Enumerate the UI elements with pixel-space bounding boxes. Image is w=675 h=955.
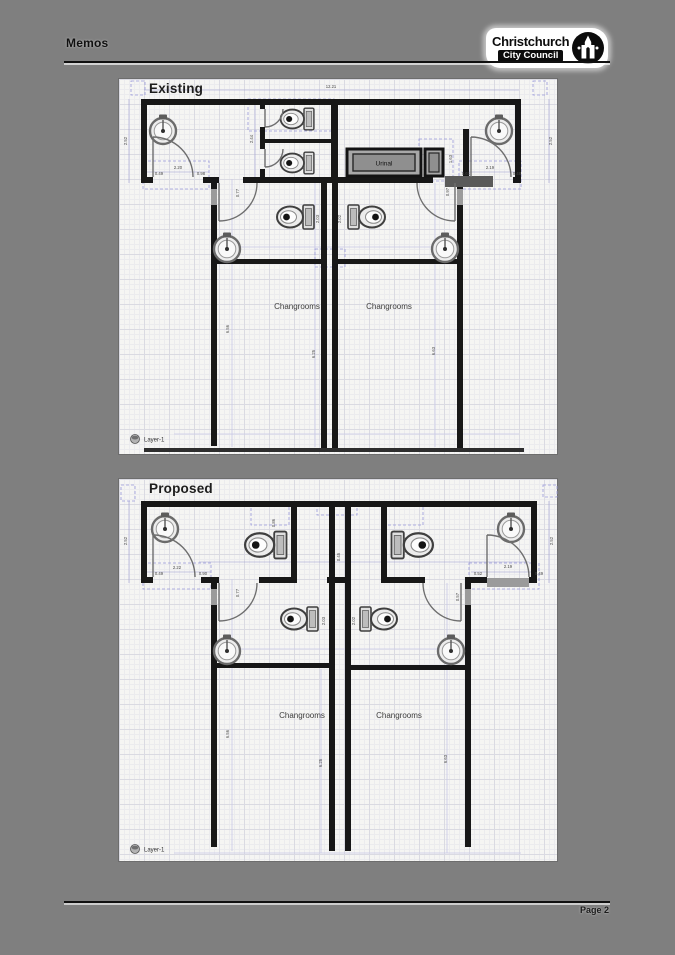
existing-title: Existing xyxy=(149,81,203,96)
memo-title: Memos xyxy=(66,36,108,50)
toilet-icon xyxy=(360,607,397,631)
dim-label: 1.63 xyxy=(448,154,453,163)
dim-label: 0.77 xyxy=(235,588,240,597)
existing-walls xyxy=(141,99,524,452)
dim-label: 0.48 xyxy=(513,171,522,176)
logo-line2: City Council xyxy=(498,50,563,62)
toilet-icon xyxy=(277,205,314,229)
bench-right xyxy=(445,176,493,187)
changrooms-label: Changrooms xyxy=(366,302,412,311)
proposed-fixtures xyxy=(152,513,529,665)
dim-label: 2.19 xyxy=(504,564,513,569)
dim-label: 6.63 xyxy=(443,754,448,763)
changrooms-label: Changrooms xyxy=(376,711,422,720)
dim-label: 2.20 xyxy=(174,165,183,170)
changrooms-label: Changrooms xyxy=(279,711,325,720)
bench-right xyxy=(487,578,529,587)
dim-label: 2.19 xyxy=(486,165,495,170)
dim-label: 0.52 xyxy=(474,571,483,576)
dim-label: 6.25 xyxy=(311,349,316,358)
existing-plan-panel: Existing xyxy=(118,78,558,455)
dim-label: 2.02 xyxy=(351,616,356,625)
cathedral-icon xyxy=(571,31,605,65)
proposed-guides xyxy=(121,485,557,853)
toilet-icon xyxy=(281,108,314,130)
layer-label: Layer-1 xyxy=(144,848,165,854)
dim-label: 12.21 xyxy=(326,84,337,89)
dim-label: 0.77 xyxy=(235,188,240,197)
sink-icon xyxy=(150,115,176,145)
dim-label: 6.25 xyxy=(318,758,323,767)
dim-label: 0.45 xyxy=(336,552,341,561)
dim-label: 2.52 xyxy=(123,536,128,545)
toilet-icon xyxy=(391,532,432,559)
changrooms-label: Changrooms xyxy=(274,302,320,311)
toilet-icon xyxy=(245,532,286,559)
dim-label: 2.03 xyxy=(321,616,326,625)
dim-label: 0.98 xyxy=(197,171,206,176)
dim-label: 0.57 xyxy=(455,592,460,601)
urinal-label: Urinal xyxy=(376,161,394,168)
door-arc xyxy=(265,109,283,127)
dim-label: 2.52 xyxy=(548,136,553,145)
existing-plan-drawing: Existing xyxy=(119,79,559,456)
proposed-plan-drawing: Proposed xyxy=(119,479,559,863)
toilet-icon xyxy=(281,607,318,631)
sink-icon xyxy=(214,233,240,263)
footer-rule xyxy=(64,901,610,903)
logo-line1: Christchurch xyxy=(492,35,569,49)
existing-layer-indicator: Layer-1 xyxy=(131,435,166,444)
layer-label: Layer-1 xyxy=(144,438,165,444)
logo-text: Christchurch City Council xyxy=(492,35,569,62)
dim-label: 0.86 xyxy=(271,518,276,527)
urinal: Urinal xyxy=(347,149,443,176)
dim-label: 0.90 xyxy=(199,571,208,576)
dim-label: 0.49 xyxy=(155,171,164,176)
page-number: Page 2 xyxy=(580,905,609,915)
dim-label: 2.52 xyxy=(549,536,554,545)
dim-label: 6.63 xyxy=(431,346,436,355)
dim-label: 0.49 xyxy=(535,571,544,576)
proposed-layer-indicator: Layer-1 xyxy=(131,845,166,854)
dim-label: 2.52 xyxy=(123,136,128,145)
existing-room-labels: Changrooms Changrooms xyxy=(274,302,412,311)
dim-label: 2.44 xyxy=(249,134,254,143)
dim-label: 2.22 xyxy=(173,565,182,570)
sink-icon xyxy=(486,115,512,145)
sink-icon xyxy=(214,635,240,665)
dim-label: 2.03 xyxy=(315,214,320,223)
dim-label: 6.56 xyxy=(225,729,230,738)
proposed-dimensions: 2.52 2.52 0.49 2.22 0.90 0.52 2.19 0.49 … xyxy=(123,518,554,767)
dim-label: 6.56 xyxy=(225,324,230,333)
door-arc xyxy=(219,583,257,621)
dim-label: 0.61 xyxy=(462,171,471,176)
proposed-plan-panel: Proposed xyxy=(118,478,558,862)
sink-icon xyxy=(432,233,458,263)
layer-icon xyxy=(131,845,140,854)
toilet-icon xyxy=(281,152,314,174)
toilet-icon xyxy=(348,205,385,229)
door-arc xyxy=(219,183,257,221)
layer-icon xyxy=(131,435,140,444)
header-rule xyxy=(64,61,610,63)
proposed-title: Proposed xyxy=(149,481,213,496)
dim-label: 2.02 xyxy=(337,214,342,223)
dim-label: 0.49 xyxy=(155,571,164,576)
sink-icon xyxy=(438,635,464,665)
door-arc xyxy=(487,535,529,577)
sink-icon xyxy=(152,513,178,543)
dim-label: 0.97 xyxy=(445,187,450,196)
